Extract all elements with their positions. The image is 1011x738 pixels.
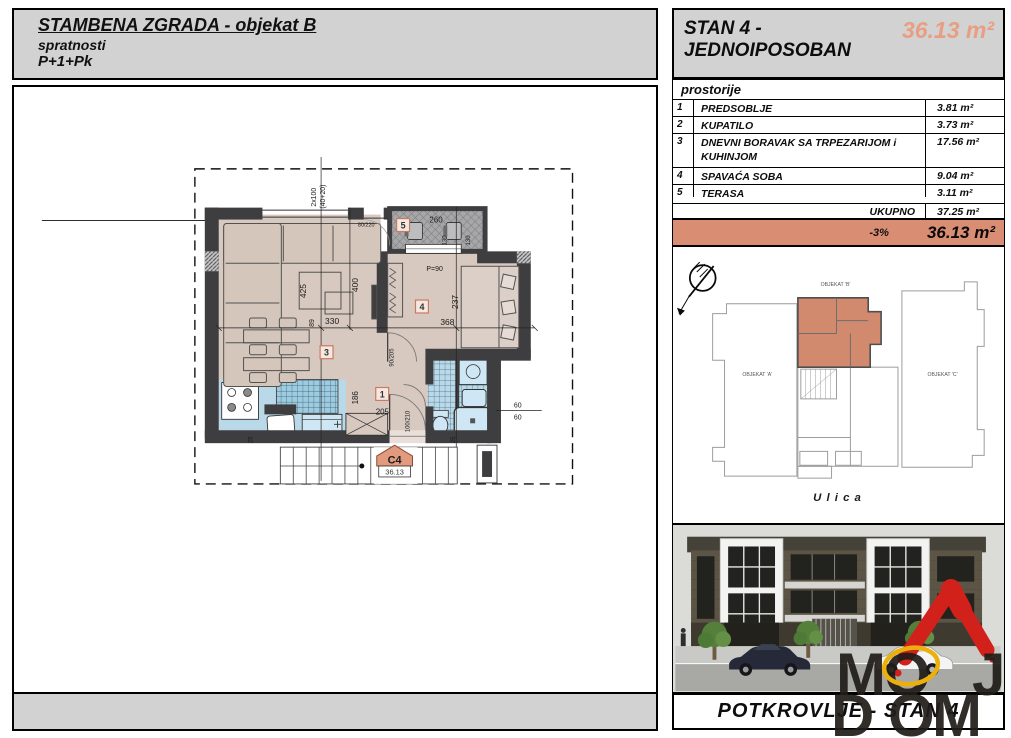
floorplan-drawing: 2x100 (40+20) 400 425 330 89 368 237 260…	[14, 87, 656, 692]
project-title: STAMBENA ZGRADA - objekat B	[38, 15, 646, 36]
washing-machine-icon	[459, 359, 487, 385]
total-value: 37.25 m²	[925, 204, 1004, 218]
table-row: 1 PREDSOBLJE 3.81 m²	[673, 100, 1004, 117]
floorplan-panel: 2x100 (40+20) 400 425 330 89 368 237 260…	[12, 85, 658, 731]
compass-icon	[677, 262, 716, 316]
stairs	[280, 447, 457, 484]
site-plan-drawing: OBJEKAT 'B' OBJEKAT 'A' OBJEKAT 'C' U l …	[673, 247, 1003, 522]
building-photo	[672, 524, 1005, 693]
highlighted-apartment	[798, 298, 881, 367]
total-label: UKUPNO	[673, 204, 925, 218]
svg-text:186: 186	[351, 391, 360, 405]
terrace-chair-icon	[446, 223, 461, 240]
total-row: UKUPNO 37.25 m²	[672, 203, 1005, 219]
building-b-lower	[798, 367, 898, 478]
svg-text:5: 5	[401, 221, 406, 231]
svg-text:425: 425	[298, 284, 308, 298]
building-a-outline	[713, 304, 797, 476]
project-subtitle: spratnosti	[38, 37, 646, 53]
ground-floor	[691, 619, 982, 648]
apartment-marker: C4 36.13	[374, 445, 418, 484]
svg-text:60: 60	[514, 414, 522, 421]
apartment-header: STAN 4 - JEDNOIPOSOBAN 36.13 m²	[672, 8, 1005, 79]
kitchen-area	[219, 380, 346, 436]
apartment-area: 36.13 m²	[902, 17, 994, 44]
building-render	[673, 525, 1003, 691]
table-row: 4 SPAVAĆA SOBA 9.04 m²	[673, 168, 1004, 185]
svg-text:89: 89	[309, 319, 316, 327]
final-area: 36.13 m²	[927, 223, 995, 243]
svg-text:3: 3	[324, 348, 329, 358]
svg-text:OBJEKAT 'A': OBJEKAT 'A'	[742, 372, 772, 378]
discount-row: -3% 36.13 m²	[672, 219, 1005, 246]
pillow-icon	[501, 274, 516, 289]
shaft-right	[477, 445, 497, 483]
plan-sheet: STAMBENA ZGRADA - objekat B spratnosti P…	[0, 0, 1011, 738]
svg-text:80/220: 80/220	[358, 223, 375, 229]
svg-text:P=90: P=90	[426, 266, 443, 273]
svg-text:OBJEKAT 'C': OBJEKAT 'C'	[928, 372, 958, 378]
svg-text:400: 400	[350, 278, 360, 292]
project-floors: P+1+Pk	[38, 53, 646, 70]
discount-label: -3%	[869, 227, 889, 239]
svg-text:130: 130	[466, 235, 472, 246]
street-label: U l i c a	[813, 492, 862, 504]
svg-text:100/210: 100/210	[406, 410, 412, 432]
chair-icon	[250, 318, 267, 328]
svg-text:1: 1	[380, 389, 385, 399]
svg-text:368: 368	[440, 317, 454, 327]
svg-text:130: 130	[442, 235, 448, 246]
table-row: 3 DNEVNI BORAVAK SA TRPEZARIJOM i KUHINJ…	[673, 134, 1004, 168]
svg-text:(40+20): (40+20)	[320, 185, 327, 209]
counter-icon	[264, 404, 296, 414]
svg-text:4: 4	[419, 302, 424, 312]
project-header: STAMBENA ZGRADA - objekat B spratnosti P…	[12, 8, 658, 80]
bathroom-area	[427, 357, 491, 437]
svg-text:25: 25	[451, 436, 457, 443]
sheet-footer: POTKROVLJE - STAN 4	[672, 693, 1005, 730]
svg-text:60: 60	[514, 402, 522, 409]
plan-footer-bar	[14, 692, 656, 729]
svg-text:330: 330	[325, 316, 339, 326]
svg-text:205: 205	[376, 407, 390, 416]
svg-text:237: 237	[450, 295, 460, 309]
table-row: 2 KUPATILO 3.73 m²	[673, 117, 1004, 134]
svg-text:C4: C4	[388, 455, 403, 467]
svg-text:36.13: 36.13	[385, 467, 404, 476]
stove-icon	[222, 383, 259, 420]
rooms-table-header: prostorije	[672, 79, 1005, 100]
tv-icon	[372, 285, 377, 319]
svg-text:90/205: 90/205	[390, 348, 396, 367]
person-icon	[681, 628, 686, 646]
site-plan-panel: OBJEKAT 'B' OBJEKAT 'A' OBJEKAT 'C' U l …	[672, 246, 1005, 524]
svg-text:25: 25	[249, 436, 255, 443]
svg-text:260: 260	[429, 216, 443, 225]
rooms-table: 1 PREDSOBLJE 3.81 m² 2 KUPATILO 3.73 m² …	[672, 100, 1005, 202]
svg-text:OBJEKAT 'B': OBJEKAT 'B'	[821, 282, 851, 288]
bath-sink-icon	[462, 390, 486, 407]
svg-text:2x100: 2x100	[311, 188, 318, 207]
